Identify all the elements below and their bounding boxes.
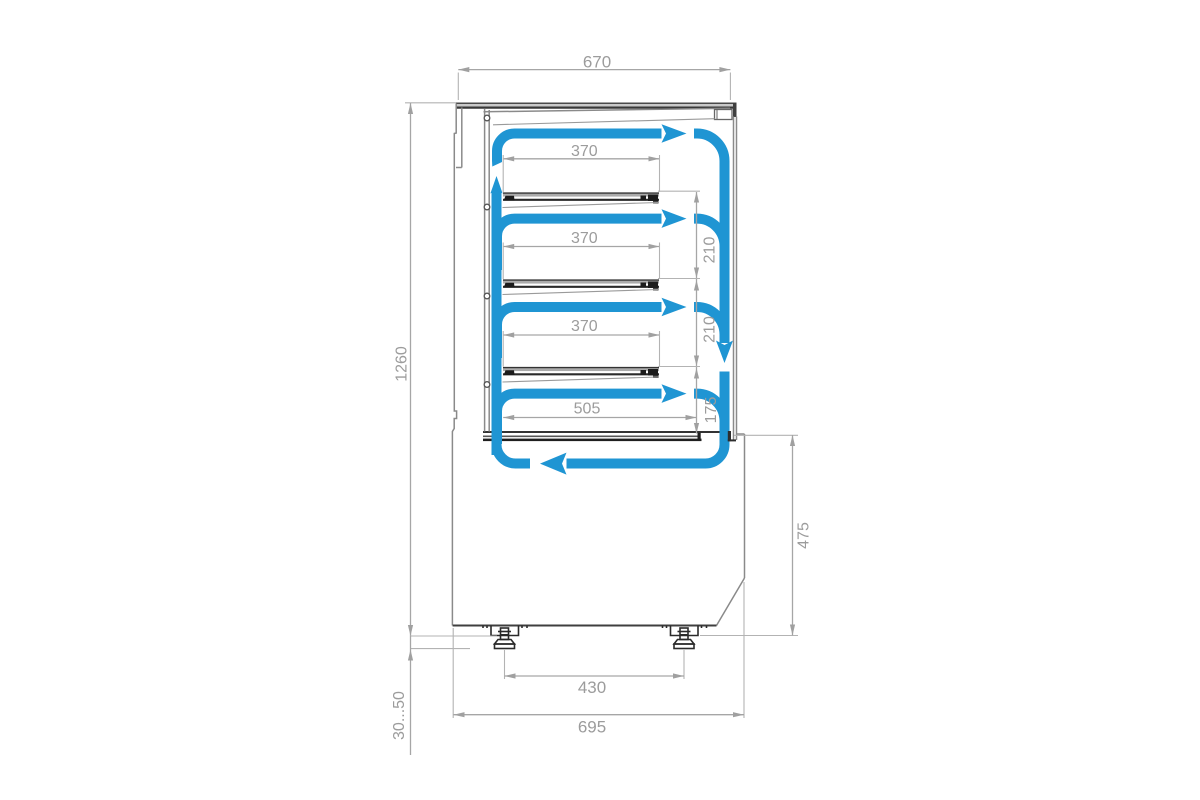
svg-text:475: 475 (796, 522, 813, 549)
svg-text:30...50: 30...50 (391, 691, 408, 740)
svg-text:505: 505 (574, 401, 601, 418)
svg-text:370: 370 (571, 230, 598, 247)
svg-text:695: 695 (578, 718, 606, 737)
svg-text:1260: 1260 (394, 346, 411, 382)
svg-text:670: 670 (583, 53, 611, 72)
svg-text:370: 370 (571, 318, 598, 335)
svg-text:175: 175 (703, 397, 720, 424)
svg-text:370: 370 (571, 143, 598, 160)
svg-text:210: 210 (702, 237, 719, 264)
svg-text:210: 210 (702, 316, 719, 343)
svg-text:430: 430 (578, 678, 606, 697)
